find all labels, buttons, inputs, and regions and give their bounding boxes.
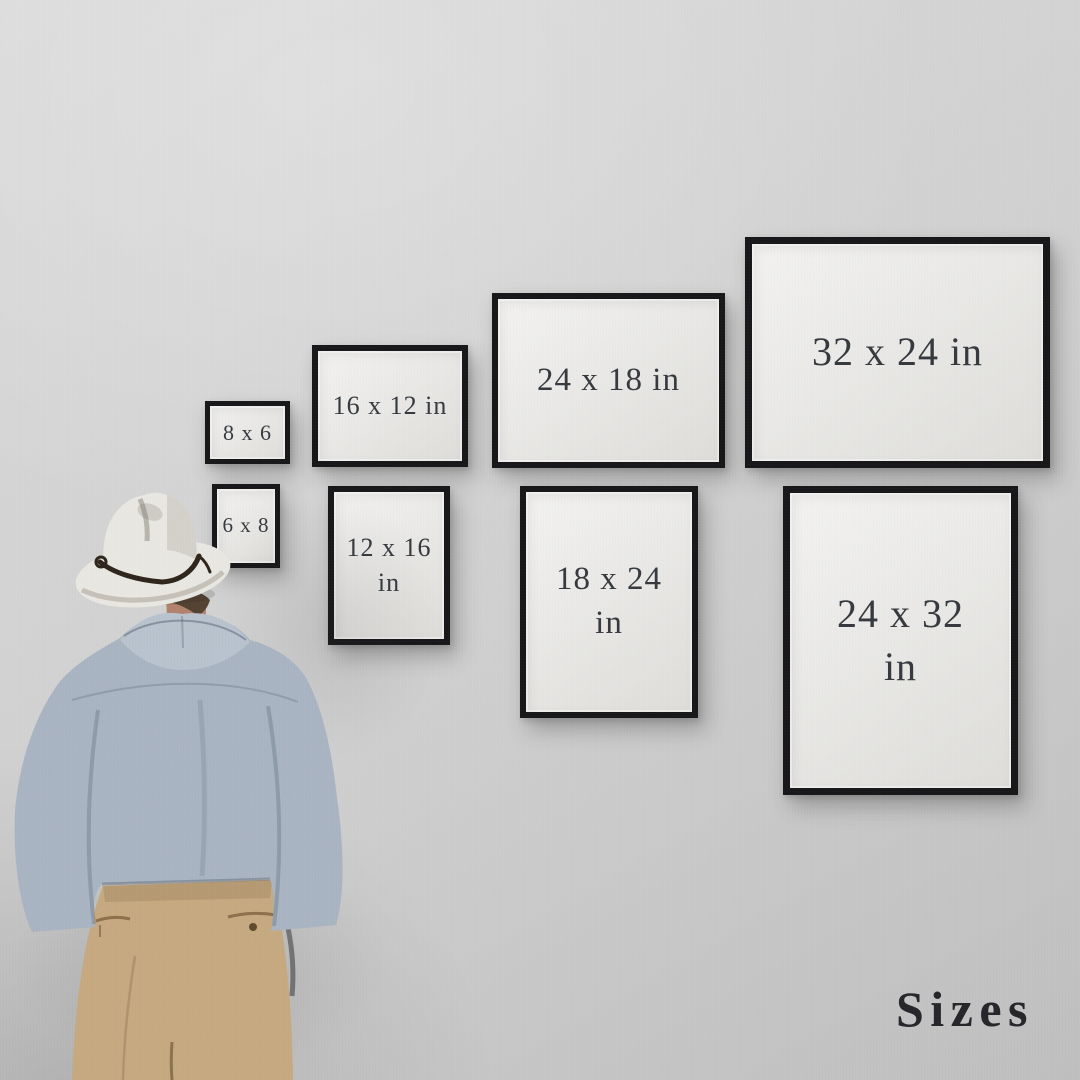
hat-crown-crease bbox=[140, 499, 147, 541]
trousers-right-pocket bbox=[228, 913, 276, 917]
frame-32x24: 32 x 24 in bbox=[745, 237, 1050, 468]
shirt-left-arm-seam bbox=[89, 710, 98, 924]
shirt-collar bbox=[120, 613, 250, 670]
frame-size-label: 6 x 8 bbox=[221, 512, 272, 540]
frame-16x12: 16 x 12 in bbox=[312, 345, 468, 467]
shirt-hem-shadow bbox=[102, 879, 270, 884]
shirt-right-arm-seam bbox=[268, 706, 279, 926]
frame-size-label: 24 x 32 in bbox=[824, 588, 978, 694]
frame-8x6: 8 x 6 bbox=[205, 401, 290, 464]
person-neck bbox=[166, 593, 206, 636]
hat-underbrim-shadow bbox=[95, 583, 215, 605]
person-floor-shadow bbox=[10, 850, 390, 1080]
hat-crown-dimple bbox=[135, 500, 165, 524]
person-shirt bbox=[15, 615, 343, 932]
frame-18x24: 18 x 24 in bbox=[520, 486, 698, 718]
frame-size-label: 12 x 16 in bbox=[334, 531, 444, 600]
collar-notch bbox=[182, 616, 183, 648]
frame-24x32: 24 x 32 in bbox=[783, 486, 1018, 795]
frame-size-label: 32 x 24 in bbox=[810, 326, 985, 379]
person-hair bbox=[158, 589, 210, 616]
frame-6x8: 6 x 8 bbox=[212, 484, 280, 568]
collar-seam bbox=[124, 621, 246, 640]
hat-brim bbox=[71, 531, 234, 616]
frame-12x16: 12 x 16 in bbox=[328, 486, 450, 645]
trousers-leg-crease bbox=[171, 1042, 172, 1080]
hat-band bbox=[100, 556, 199, 582]
size-guide-mockup: 8 x 6 16 x 12 in 24 x 18 in 32 x 24 in 6… bbox=[0, 0, 1080, 1080]
trousers-side-shadow bbox=[288, 928, 293, 996]
person-trousers bbox=[72, 880, 293, 1080]
frame-size-label: 24 x 18 in bbox=[535, 359, 682, 403]
hat-band-tail bbox=[199, 556, 210, 572]
page-title: Sizes bbox=[896, 980, 1034, 1038]
frame-size-label: 18 x 24 in bbox=[547, 558, 671, 645]
hat-crown-shade bbox=[167, 495, 197, 560]
trousers-fold-line bbox=[123, 956, 135, 1080]
frame-24x18: 24 x 18 in bbox=[492, 293, 725, 468]
trousers-left-pocket bbox=[96, 917, 130, 921]
hat-band-loop bbox=[96, 557, 106, 567]
hat-crown bbox=[103, 493, 197, 566]
shirt-yoke-seam bbox=[72, 684, 298, 702]
shirt-back-fold bbox=[200, 700, 204, 876]
trousers-waist-shadow bbox=[103, 880, 272, 902]
hat-brim-shading bbox=[82, 572, 223, 600]
frame-size-label: 16 x 12 in bbox=[331, 389, 450, 423]
frame-size-label: 8 x 6 bbox=[221, 418, 274, 447]
trousers-pocket-button bbox=[249, 923, 257, 931]
